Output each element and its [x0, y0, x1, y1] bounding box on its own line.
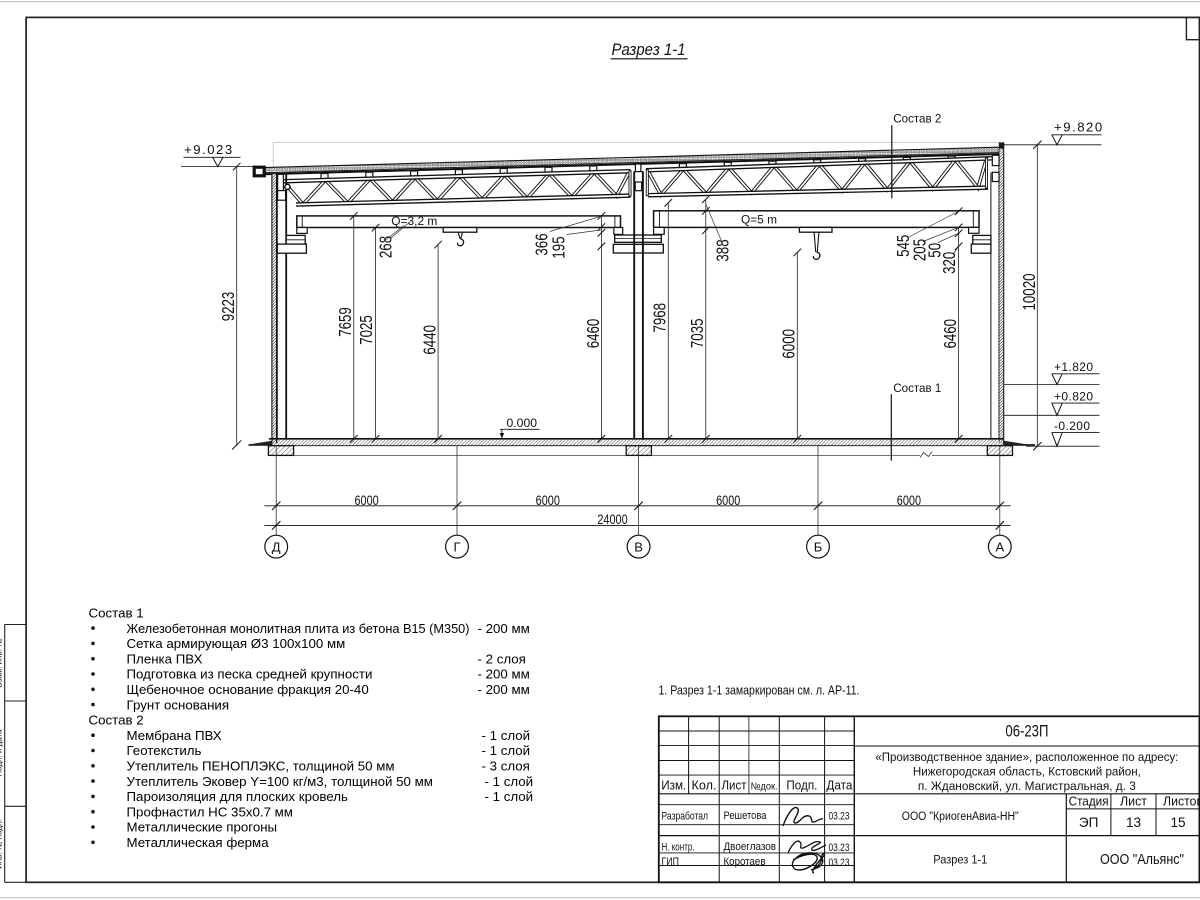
svg-text:Профнастил НС 35х0.7 мм: Профнастил НС 35х0.7 мм [127, 804, 293, 819]
svg-text:- 1 слой: - 1 слой [485, 774, 534, 789]
svg-text:Взам. инв. №: Взам. инв. № [0, 638, 4, 688]
svg-text:- 1 слой: - 1 слой [482, 728, 531, 743]
svg-text:6000: 6000 [716, 493, 740, 509]
svg-text:Q=3,2 m: Q=3,2 m [391, 214, 437, 228]
svg-text:Разрез 1-1: Разрез 1-1 [933, 852, 987, 866]
svg-text:7968: 7968 [651, 303, 670, 333]
svg-text:А: А [995, 539, 1004, 554]
svg-text:Q=5 m: Q=5 m [741, 213, 777, 227]
svg-text:Железобетонная монолитная плит: Железобетонная монолитная плита из бетон… [127, 621, 470, 636]
svg-text:6440: 6440 [421, 325, 440, 355]
svg-text:6000: 6000 [354, 493, 378, 509]
svg-text:ООО "КриогенАвиа-НН": ООО "КриогенАвиа-НН" [902, 809, 1019, 823]
svg-text:24000: 24000 [597, 512, 627, 528]
svg-text:195: 195 [550, 236, 569, 258]
svg-text:- 200 мм: - 200 мм [478, 682, 530, 697]
svg-text:- 2 слоя: - 2 слоя [478, 651, 526, 666]
svg-text:-0.200: -0.200 [1054, 419, 1090, 433]
svg-text:Металлическая ферма: Металлическая ферма [127, 835, 270, 850]
svg-text:7659: 7659 [337, 307, 356, 337]
svg-text:03.23: 03.23 [829, 842, 850, 854]
svg-text:Пленка ПВХ: Пленка ПВХ [127, 651, 203, 666]
svg-text:6000: 6000 [780, 329, 799, 359]
svg-text:13: 13 [1126, 815, 1141, 830]
svg-text:Грунт основания: Грунт основания [127, 697, 230, 712]
svg-text:Геотекстиль: Геотекстиль [127, 743, 202, 758]
svg-text:«Производственное здание», рас: «Производственное здание», расположенное… [875, 750, 1178, 764]
svg-text:Подп.: Подп. [786, 778, 817, 793]
svg-text:9223: 9223 [219, 292, 238, 322]
svg-text:Изм.: Изм. [661, 778, 686, 793]
svg-text:ГИП: ГИП [662, 856, 680, 868]
svg-text:7035: 7035 [689, 319, 708, 349]
svg-text:Состав 2: Состав 2 [89, 713, 144, 728]
svg-text:+1.820: +1.820 [1054, 360, 1093, 374]
svg-text:Инв. № подл.: Инв. № подл. [0, 819, 4, 869]
svg-text:ООО "Альянс": ООО "Альянс" [1100, 852, 1184, 868]
svg-text:+9.820: +9.820 [1054, 120, 1104, 135]
svg-text:- 200 мм: - 200 мм [478, 667, 530, 682]
svg-text:0.000: 0.000 [507, 416, 538, 430]
svg-text:Н. контр.: Н. контр. [662, 842, 695, 854]
svg-text:Подп. и дата: Подп. и дата [0, 729, 4, 777]
svg-text:+0.820: +0.820 [1054, 389, 1093, 403]
svg-text:10020: 10020 [1020, 273, 1039, 310]
svg-text:06-23П: 06-23П [1005, 723, 1048, 741]
svg-text:6000: 6000 [897, 493, 921, 509]
svg-text:№док.: №док. [751, 781, 778, 792]
svg-text:Лист: Лист [1120, 794, 1147, 809]
svg-text:Утеплитель Эковер Y=100 кг/м3,: Утеплитель Эковер Y=100 кг/м3, толщиной … [127, 774, 433, 789]
svg-text:Мембрана ПВХ: Мембрана ПВХ [127, 728, 222, 743]
svg-text:Д: Д [272, 539, 281, 554]
svg-text:Щебеночное основание фракция 2: Щебеночное основание фракция 20-40 [127, 682, 369, 697]
svg-text:Лист: Лист [722, 778, 747, 793]
svg-text:15: 15 [1170, 815, 1185, 830]
svg-text:Металлические прогоны: Металлические прогоны [127, 820, 278, 835]
svg-text:Б: Б [814, 539, 823, 554]
svg-text:- 1 слой: - 1 слой [485, 789, 534, 804]
svg-text:Двоеглазов: Двоеглазов [724, 841, 777, 853]
svg-text:6460: 6460 [584, 318, 603, 348]
svg-text:ЭП: ЭП [1079, 815, 1099, 830]
svg-text:+9.023: +9.023 [184, 142, 234, 157]
svg-text:Состав 1: Состав 1 [893, 382, 941, 395]
svg-text:Г: Г [453, 539, 460, 554]
svg-text:п. Ждановский, ул. Магистральн: п. Ждановский, ул. Магистральная, д. 3 [918, 779, 1136, 793]
svg-text:Состав 2: Состав 2 [893, 113, 941, 126]
svg-text:- 1 слой: - 1 слой [482, 743, 531, 758]
svg-text:6000: 6000 [536, 493, 560, 509]
svg-text:Нижегородская область, Кстовск: Нижегородская область, Кстовский район, [913, 765, 1141, 779]
svg-text:Утеплитель ПЕНОПЛЭКС, толщиной: Утеплитель ПЕНОПЛЭКС, толщиной 50 мм [127, 759, 395, 774]
svg-text:1. Разрез 1-1 замаркирован см.: 1. Разрез 1-1 замаркирован см. л. АР-11. [659, 683, 860, 698]
svg-text:Решетова: Решетова [724, 810, 768, 822]
svg-text:Дата: Дата [826, 778, 853, 793]
svg-text:- 200 мм: - 200 мм [478, 621, 530, 636]
svg-text:- 3 слоя: - 3 слоя [482, 759, 530, 774]
svg-text:268: 268 [377, 236, 396, 258]
svg-text:6460: 6460 [941, 319, 960, 349]
svg-text:03.23: 03.23 [829, 810, 850, 822]
svg-text:Разрез 1-1: Разрез 1-1 [612, 41, 686, 59]
svg-text:7025: 7025 [357, 315, 376, 345]
svg-text:Разработал: Разработал [662, 810, 709, 822]
svg-text:Кол.: Кол. [692, 778, 717, 793]
svg-text:Сетка армирующая Ø3 100х100 мм: Сетка армирующая Ø3 100х100 мм [127, 636, 346, 651]
svg-text:Подготовка из песка средней кр: Подготовка из песка средней крупности [127, 667, 373, 682]
svg-text:320: 320 [940, 251, 959, 273]
svg-text:03.23: 03.23 [829, 857, 850, 869]
svg-text:Пароизоляция для плоских крове: Пароизоляция для плоских кровель [127, 789, 349, 804]
svg-text:Состав 1: Состав 1 [89, 606, 144, 621]
svg-text:388: 388 [714, 239, 733, 261]
svg-text:Стадия: Стадия [1069, 794, 1109, 809]
svg-text:Листов: Листов [1163, 794, 1200, 809]
svg-text:В: В [634, 539, 643, 554]
svg-text:Коротаев: Коротаев [724, 856, 766, 868]
